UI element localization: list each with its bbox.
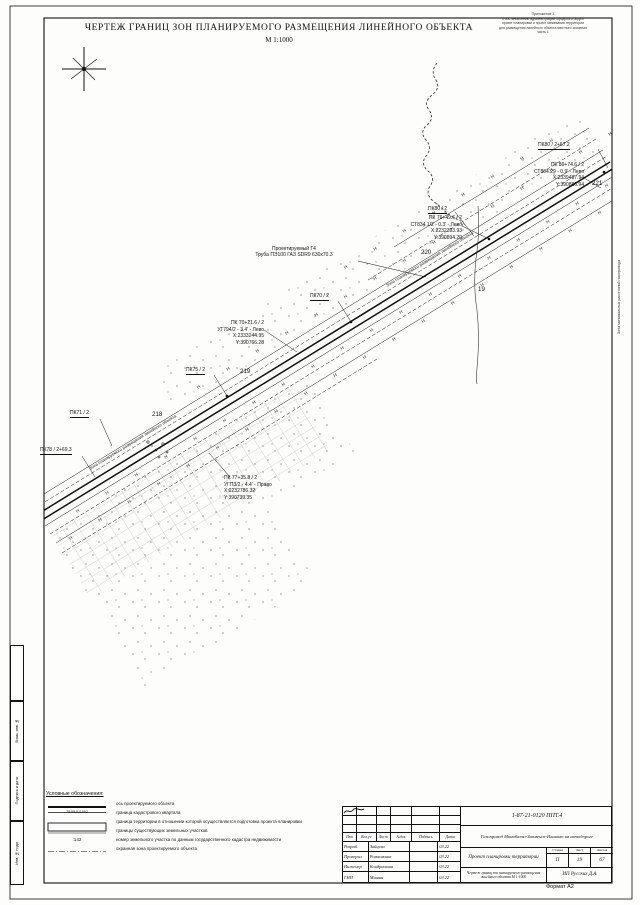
coord-line: Y:390886.94	[500, 182, 584, 189]
picket-label: ПК78 / 2+69.3	[40, 447, 72, 455]
parcel-number: 221	[592, 180, 602, 187]
pipe-label: Проектируемый Г4 Труба ПЭ100 ГАЗ SDR9 63…	[230, 246, 358, 258]
title-block-right: 1-87-21-0120 ППТ.4 Газопровод Минибаево-…	[461, 807, 613, 882]
legend-label: граница кадастрового квартала	[116, 810, 331, 816]
legend-label: номер земельного участка по данным госуд…	[116, 837, 331, 843]
legend-row: охранная зона проектируемого объекта	[46, 846, 338, 852]
margin-box-vzam: Взам. инв. №	[10, 700, 24, 762]
title-block: Изм Кол.уч Лист №док Подпись Дата Разраб…	[342, 806, 612, 883]
role-cell: Разраб.	[343, 842, 369, 852]
legend-row: ось проектируемого объекта	[46, 801, 338, 807]
legend: Условные обозначения: ось проектируемого…	[46, 791, 338, 855]
legend-title: Условные обозначения:	[46, 791, 338, 797]
change-row	[343, 825, 460, 834]
name-cell: Мишин	[369, 872, 411, 882]
margin-box-podpis: Подпись и дата	[10, 760, 24, 822]
signature-cell	[410, 852, 438, 862]
date-cell: 03.22	[438, 852, 460, 862]
crossing-line	[475, 206, 479, 384]
page-title: ЧЕРТЕЖ ГРАНИЦ ЗОН ПЛАНИРУЕМОГО РАЗМЕЩЕНИ…	[44, 23, 514, 33]
picket-label: ПК80 / 2+67.2	[538, 142, 570, 150]
date-cell: 03.22	[438, 862, 460, 872]
signature-squiggle	[343, 807, 365, 815]
col-header: Лист	[377, 833, 391, 842]
date-cell: 03.22	[438, 842, 460, 852]
legend-symbol-cadastral-quarter: 70:05:011002	[46, 811, 108, 814]
sheet-header: Лист	[569, 848, 591, 855]
signature-cell	[410, 842, 438, 852]
signature-cell	[410, 862, 438, 872]
corner-note-line: часть 1	[468, 30, 618, 35]
legend-label: ось проектируемого объекта	[116, 801, 331, 807]
role-cell: Проверил	[343, 852, 369, 862]
stage-header: Стадия	[547, 848, 569, 855]
name-cell: Зайцева	[369, 842, 411, 852]
role-cell: ГИП	[343, 872, 369, 882]
legend-label: охранная зона проектируемого объекта	[116, 846, 331, 852]
parcel-number: 19	[478, 286, 485, 293]
margin-box-empty	[10, 645, 24, 702]
north-arrow-icon	[62, 47, 106, 91]
coord-line: Y:390894.20	[384, 235, 462, 242]
stage-sheet-table: Стадия Лист Листов П 19 67	[547, 848, 613, 867]
project-name: Газопровод Минибаево-Знаменск-Иваново на…	[461, 826, 613, 847]
col-header: Кол.уч	[357, 833, 377, 842]
coord-line: Y:390766.28	[190, 340, 264, 347]
signature-row: Инженер Кондрашова 03.22	[343, 862, 460, 872]
margin-label: Взам. инв. №	[15, 719, 19, 742]
margin-label: Подпись и дата	[15, 777, 19, 804]
col-header: Подпись	[412, 833, 440, 842]
legend-row: :142 номер земельного участка по данным …	[46, 837, 338, 843]
terrain-speckle	[51, 111, 602, 687]
margin-box-inv: Инв. № подл.	[10, 820, 24, 885]
name-cell: Ромашкина	[369, 852, 411, 862]
drawing-sheet: Н Н Н Н Н Н Н Н Н Н Н Н Н Н Н Н Н Н Н Н …	[0, 0, 640, 905]
legend-label: границы существующих земельных участков	[116, 828, 331, 834]
coord-block: ПК 76+49.6 / 2 СТ834.1/2 - 0.3' - Лево X…	[384, 215, 462, 241]
signature-row: Разраб. Зайцева 03.22	[343, 842, 460, 852]
coord-block: ПК 89+74.6 / 2 СТ884.29 - 0.9' - Лево X:…	[500, 162, 584, 188]
corner-note: Приложение 1 к постановлению администрац…	[468, 12, 618, 35]
change-header-row: Изм Кол.уч Лист №док Подпись Дата	[343, 833, 460, 842]
document-title: Проект планировки территории	[461, 848, 547, 867]
date-cell: 03.22	[438, 872, 460, 882]
legend-symbol-parcel-number: :142	[46, 837, 108, 842]
pipeline-corridor	[31, 128, 628, 553]
picket-label: ПК71 / 2	[70, 410, 89, 418]
col-header: Дата	[440, 833, 460, 842]
coord-block: ПК 70+21.6 / 2 УГ794/2 - 3.4' - Лево X:2…	[190, 320, 264, 346]
legend-row: 70:05:011002 граница кадастрового кварта…	[46, 810, 338, 816]
picket-label: ПК80 / 2	[428, 206, 447, 214]
sheets-header: Листов	[591, 848, 613, 855]
right-margin-note: Зона минимальных расстояний газопровода	[617, 260, 621, 334]
role-cell: Инженер	[343, 862, 369, 872]
name-cell: Кондрашова	[369, 862, 411, 872]
coord-block: ПК 77+35.8 / 2 УГП3/2 - 4.4' - Право X:2…	[224, 475, 298, 501]
col-header: №док	[391, 833, 413, 842]
picket-label: ПК70 / 2	[310, 293, 329, 301]
margin-label: Инв. № подл.	[15, 841, 19, 865]
parcel-number: 219	[240, 368, 250, 375]
parcel-number: 220	[421, 249, 431, 256]
sheets-value: 67	[591, 854, 613, 866]
title-block-left: Изм Кол.уч Лист №док Подпись Дата Разраб…	[343, 807, 461, 882]
leader-lines	[82, 149, 608, 477]
parcel-number: 218	[152, 411, 162, 418]
change-row	[343, 816, 460, 825]
hatch-row: Н Н Н Н Н Н Н Н	[343, 129, 567, 269]
stage-value: П	[547, 854, 569, 866]
signature-cell	[410, 872, 438, 882]
company-name: ИП Русских Д.А.	[547, 868, 613, 882]
coord-line: Y:390739.35	[224, 495, 298, 502]
legend-row: граница территории в отношении которой о…	[46, 819, 338, 825]
format-label: Формат А2	[546, 884, 574, 890]
legend-symbol-text: :142	[73, 837, 82, 842]
pipe-label-line2: Труба ПЭ100 ГАЗ SDR9 630х70.3	[230, 252, 358, 258]
scale-label: М 1:1000	[44, 36, 514, 44]
signature-row: Проверил Ромашкина 03.22	[343, 852, 460, 862]
drawing-title: Чертеж границ зон планируемого размещени…	[461, 868, 547, 882]
picket-label: ПК75 / 2	[186, 367, 205, 375]
col-header: Изм	[343, 833, 357, 842]
legend-label: граница территории в отношении которой о…	[116, 819, 331, 825]
document-number: 1-87-21-0120 ППТ.4	[461, 807, 613, 826]
map-canvas: Н Н Н Н Н Н Н Н Н Н Н Н Н Н Н Н Н Н Н Н …	[0, 0, 640, 905]
sheet-value: 19	[569, 854, 591, 866]
signature-row: ГИП Мишин 03.22	[343, 872, 460, 882]
